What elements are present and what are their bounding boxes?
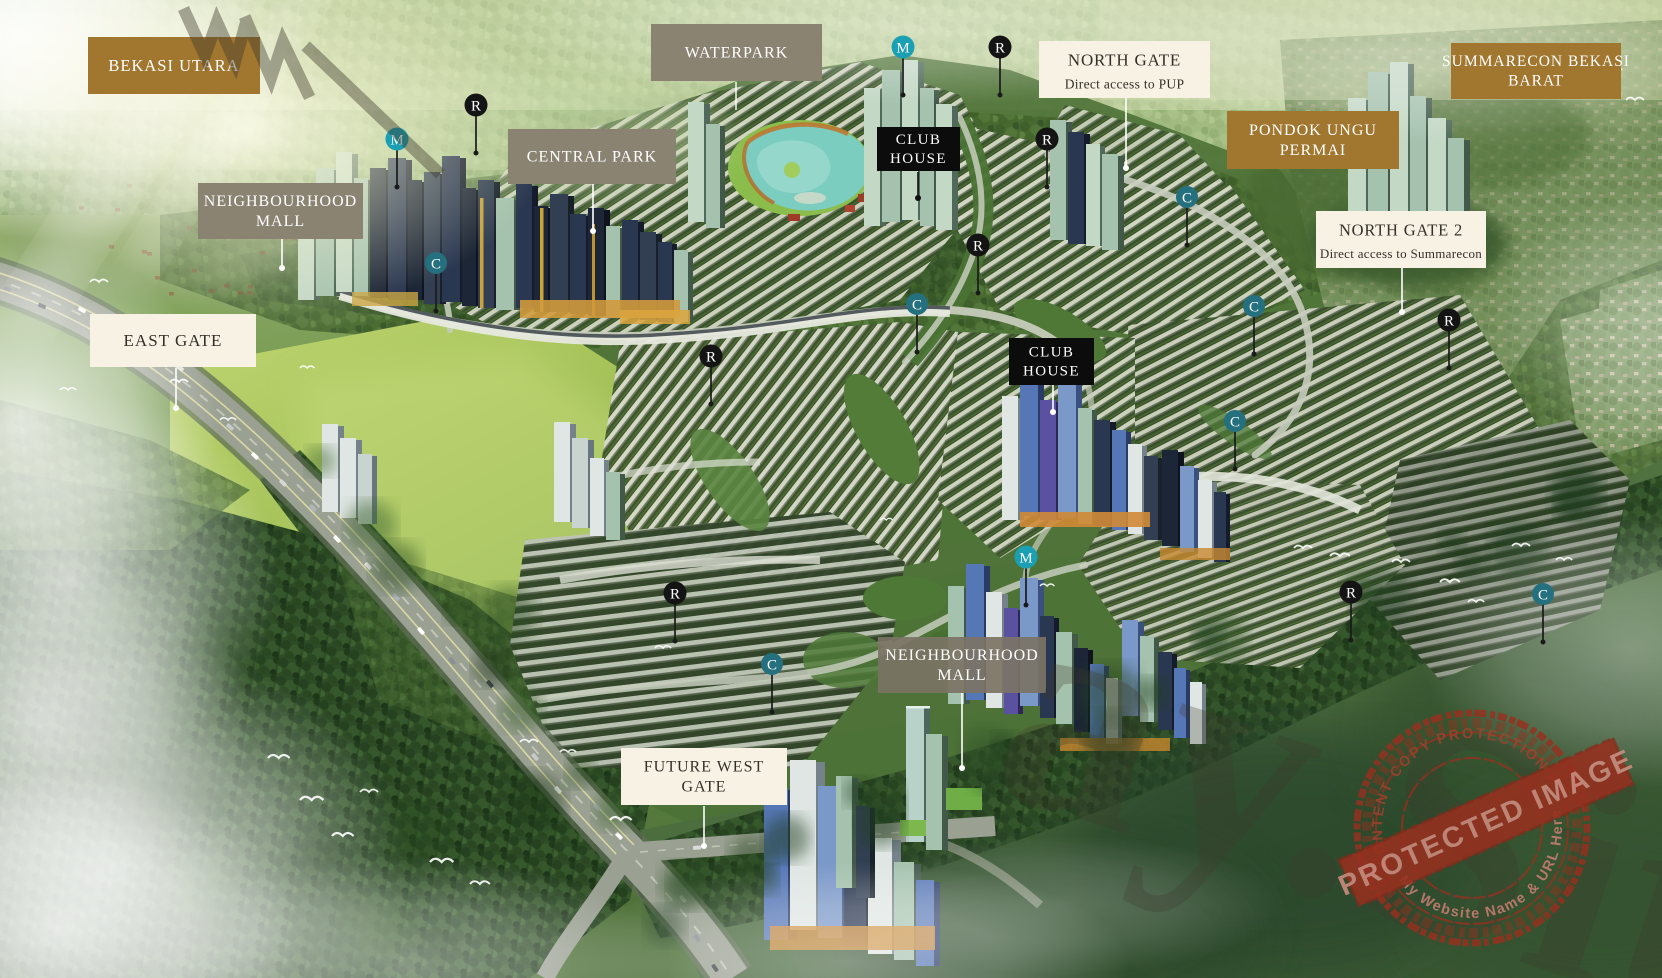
svg-text:R: R — [1346, 586, 1356, 602]
svg-text:CLUB: CLUB — [896, 132, 942, 148]
svg-text:BEKASI UTARA: BEKASI UTARA — [108, 56, 239, 75]
svg-text:PONDOK UNGU: PONDOK UNGU — [1249, 122, 1377, 139]
svg-text:R: R — [973, 239, 983, 255]
svg-text:R: R — [1444, 314, 1454, 330]
svg-text:FUTURE WEST: FUTURE WEST — [644, 759, 764, 776]
svg-text:Direct access to Summarecon: Direct access to Summarecon — [1320, 246, 1482, 261]
svg-text:M: M — [1019, 551, 1032, 567]
svg-text:BARAT: BARAT — [1508, 73, 1564, 90]
svg-text:R: R — [670, 587, 680, 603]
svg-text:CENTRAL PARK: CENTRAL PARK — [527, 149, 657, 166]
svg-text:Direct access to PUP: Direct access to PUP — [1065, 76, 1185, 91]
svg-text:NEIGHBOURHOOD: NEIGHBOURHOOD — [885, 647, 1038, 664]
svg-text:C: C — [431, 257, 441, 273]
svg-text:C: C — [912, 298, 922, 314]
svg-text:C: C — [767, 658, 777, 674]
svg-text:GATE: GATE — [682, 779, 727, 796]
svg-text:HOUSE: HOUSE — [890, 151, 947, 167]
svg-text:MALL: MALL — [256, 213, 305, 230]
svg-text:C: C — [1249, 300, 1259, 316]
svg-text:WATERPARK: WATERPARK — [685, 45, 789, 62]
svg-text:C: C — [1538, 588, 1548, 604]
svg-text:C: C — [1230, 415, 1240, 431]
svg-text:R: R — [1042, 133, 1052, 149]
svg-text:MALL: MALL — [937, 667, 986, 684]
svg-text:NORTH GATE 2: NORTH GATE 2 — [1339, 220, 1463, 239]
svg-text:NEIGHBOURHOOD: NEIGHBOURHOOD — [204, 193, 357, 210]
svg-text:M: M — [896, 41, 909, 57]
svg-text:CLUB: CLUB — [1029, 345, 1075, 361]
svg-text:C: C — [1182, 191, 1192, 207]
svg-text:HOUSE: HOUSE — [1023, 364, 1080, 380]
svg-text:EAST GATE: EAST GATE — [124, 331, 223, 350]
svg-text:R: R — [706, 350, 716, 366]
svg-text:NORTH GATE: NORTH GATE — [1068, 50, 1181, 69]
svg-text:R: R — [471, 99, 481, 115]
svg-text:PERMAI: PERMAI — [1280, 142, 1346, 159]
svg-text:R: R — [995, 41, 1005, 57]
svg-text:SUMMARECON BEKASI: SUMMARECON BEKASI — [1442, 53, 1630, 70]
